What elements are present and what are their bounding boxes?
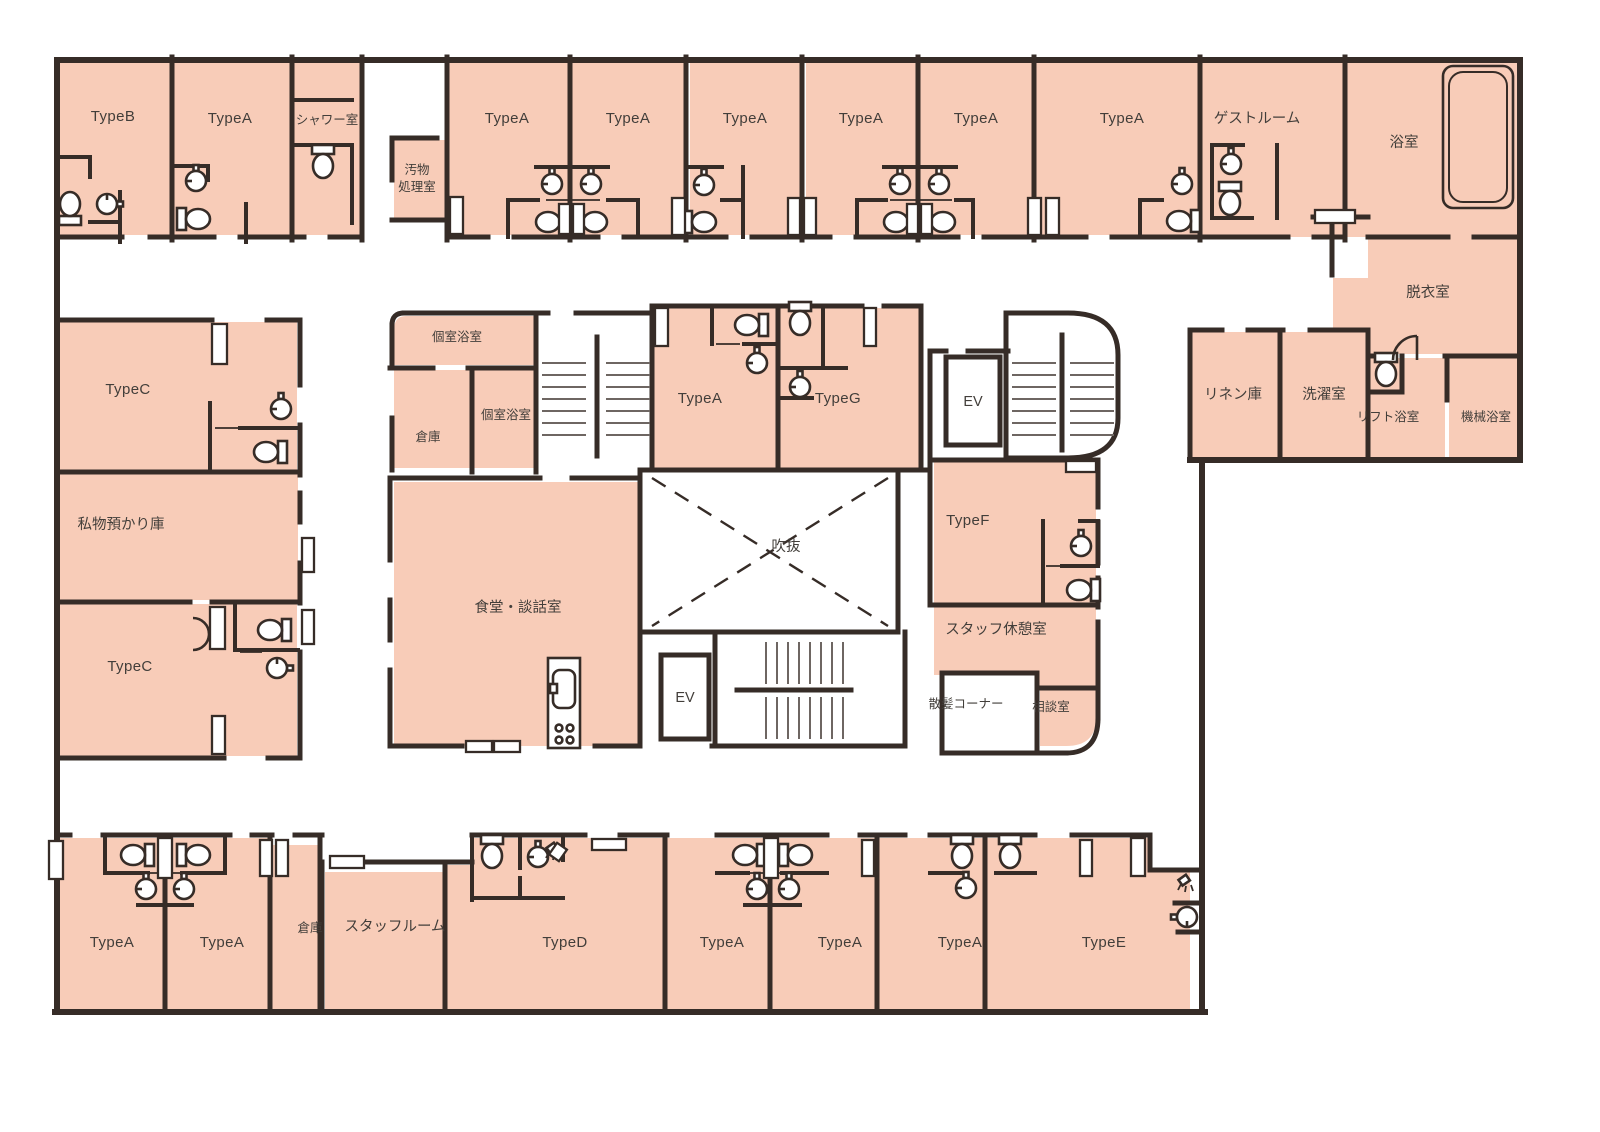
label-typea: TypeA (200, 934, 245, 951)
toilet-icon (683, 211, 716, 233)
room-staff-lounge (934, 607, 1096, 675)
toilet-icon (177, 208, 210, 230)
label-elevator: EV (675, 690, 695, 706)
label-typea: TypeA (839, 110, 884, 127)
toilet-icon (1167, 210, 1200, 232)
label-typed: TypeD (542, 934, 587, 951)
door-leaf-icon (276, 840, 288, 876)
label-typef: TypeF (946, 512, 990, 529)
room-staff-room (325, 872, 443, 1010)
room-dressing-2 (1333, 278, 1368, 328)
toilet-icon (254, 441, 287, 463)
toilet-icon (735, 314, 768, 336)
label-typea: TypeA (954, 110, 999, 127)
label-typea: TypeA (606, 110, 651, 127)
label-bath-room: 浴室 (1390, 134, 1419, 151)
room-typea-top-5 (806, 60, 916, 235)
toilet-icon (999, 835, 1021, 868)
room-bath (1347, 60, 1520, 237)
door-leaf-icon (49, 841, 63, 879)
room-typea-top-1 (174, 60, 290, 235)
label-laundry: 洗濯室 (1302, 386, 1346, 403)
door-leaf-icon (302, 610, 314, 644)
stairs-icon (1012, 363, 1056, 435)
kitchen-icon (548, 658, 580, 748)
atrium-cross-dashes (652, 478, 888, 626)
toilet-icon (59, 192, 81, 225)
label-storage: 倉庫 (297, 920, 322, 935)
toilet-icon (481, 835, 503, 868)
floor-plan-svg: TypeB TypeA シャワー室 汚物 処理室 TypeA TypeA Typ… (0, 0, 1600, 1132)
toilet-icon (733, 844, 766, 866)
toilet-icon (789, 302, 811, 335)
door-leaf-icon (1080, 840, 1092, 876)
room-typea-top-3 (572, 60, 684, 235)
stairs-center-right (1012, 335, 1114, 450)
label-waste-1: 汚物 (404, 163, 429, 177)
stairs-bottom (737, 642, 851, 739)
label-typea: TypeA (678, 390, 723, 407)
door-leaf-icon (158, 838, 172, 878)
label-typea: TypeA (723, 110, 768, 127)
closet-icon (210, 607, 225, 649)
label-typee: TypeE (1082, 934, 1127, 951)
label-atrium: 吹抜 (772, 538, 801, 555)
door-leaf-icon (466, 741, 492, 752)
toilet-icon (177, 844, 210, 866)
door-leaf-icon (573, 204, 584, 234)
door-leaf-icon (559, 204, 570, 234)
door-leaf-icon (330, 856, 364, 868)
door-leaf-icon (302, 538, 314, 572)
door-leaf-icon (862, 840, 874, 876)
label-barber-corner: 散髪コーナー (928, 696, 1003, 711)
door-leaf-icon (764, 838, 778, 878)
stairs-icon (606, 363, 650, 435)
toilet-icon (258, 619, 291, 641)
room-storage-center (394, 370, 470, 468)
label-dressing-room: 脱衣室 (1406, 284, 1450, 301)
room-typea-top-6 (920, 60, 1032, 235)
door-leaf-icon (864, 308, 876, 346)
label-typea: TypeA (818, 934, 863, 951)
stairs-center-left (542, 337, 650, 456)
label-private-bath: 個室浴室 (481, 407, 531, 422)
label-typea: TypeA (90, 934, 135, 951)
label-typea: TypeA (938, 934, 983, 951)
label-dining: 食堂・談話室 (475, 599, 562, 616)
label-typea: TypeA (1100, 110, 1145, 127)
stairs-icon (1070, 363, 1114, 435)
room-typed (447, 838, 663, 1010)
label-typea: TypeA (700, 934, 745, 951)
toilet-icon (951, 835, 973, 868)
label-elevator: EV (963, 394, 983, 410)
door-leaf-icon (450, 197, 463, 234)
label-personal-storage: 私物預かり庫 (78, 516, 165, 533)
door-leaf-icon (1046, 198, 1059, 235)
label-linen: リネン庫 (1204, 386, 1262, 403)
door-leaf-icon (260, 840, 272, 876)
closet-icon (655, 308, 668, 346)
label-private-bath: 個室浴室 (432, 329, 482, 344)
closet-icon (212, 716, 225, 754)
door-leaf-icon (592, 839, 626, 850)
closet-icon (212, 324, 227, 364)
room-consultation (1040, 688, 1096, 746)
room-machine-bath (1449, 358, 1520, 458)
label-typea: TypeA (485, 110, 530, 127)
door-leaf-icon (494, 741, 520, 752)
door-leaf-icon (907, 204, 918, 234)
door-leaf-icon (788, 198, 800, 235)
room-personal-storage (60, 474, 298, 600)
floor-plan: TypeB TypeA シャワー室 汚物 処理室 TypeA TypeA Typ… (0, 0, 1600, 1132)
label-typeg: TypeG (815, 390, 861, 407)
label-shower-room: シャワー室 (296, 112, 359, 127)
room-waste-processing (394, 140, 446, 218)
toilet-icon (312, 145, 334, 178)
closet-icon (1066, 461, 1096, 472)
door-leaf-icon (1028, 198, 1041, 235)
toilet-icon (1219, 182, 1241, 215)
label-consultation: 相談室 (1032, 699, 1070, 714)
label-guest-room: ゲストルーム (1214, 110, 1301, 127)
door-leaf-icon (804, 198, 816, 235)
label-typec: TypeC (105, 381, 150, 398)
closet-icon (1131, 838, 1145, 876)
room-typea-top-7 (1036, 60, 1198, 235)
door-leaf-icon (1315, 210, 1355, 223)
label-storage: 倉庫 (415, 429, 440, 444)
stairs-icon (542, 363, 586, 435)
toilet-icon (121, 844, 154, 866)
stairs-icon (766, 642, 843, 684)
label-typec: TypeC (107, 658, 152, 675)
label-machine-bath: 機械浴室 (1461, 409, 1511, 424)
door-leaf-icon (921, 204, 932, 234)
label-waste-2: 処理室 (398, 179, 436, 194)
stairs-icon (766, 697, 843, 739)
label-typea: TypeA (208, 110, 253, 127)
door-leaf-icon (672, 198, 685, 235)
label-staff-lounge: スタッフ休憩室 (945, 621, 1047, 638)
toilet-icon (779, 844, 812, 866)
label-typeb: TypeB (91, 108, 136, 125)
label-staff-room: スタッフルーム (344, 918, 445, 935)
toilet-icon (1067, 579, 1100, 601)
label-lift-bath: リフト浴室 (1357, 409, 1420, 424)
